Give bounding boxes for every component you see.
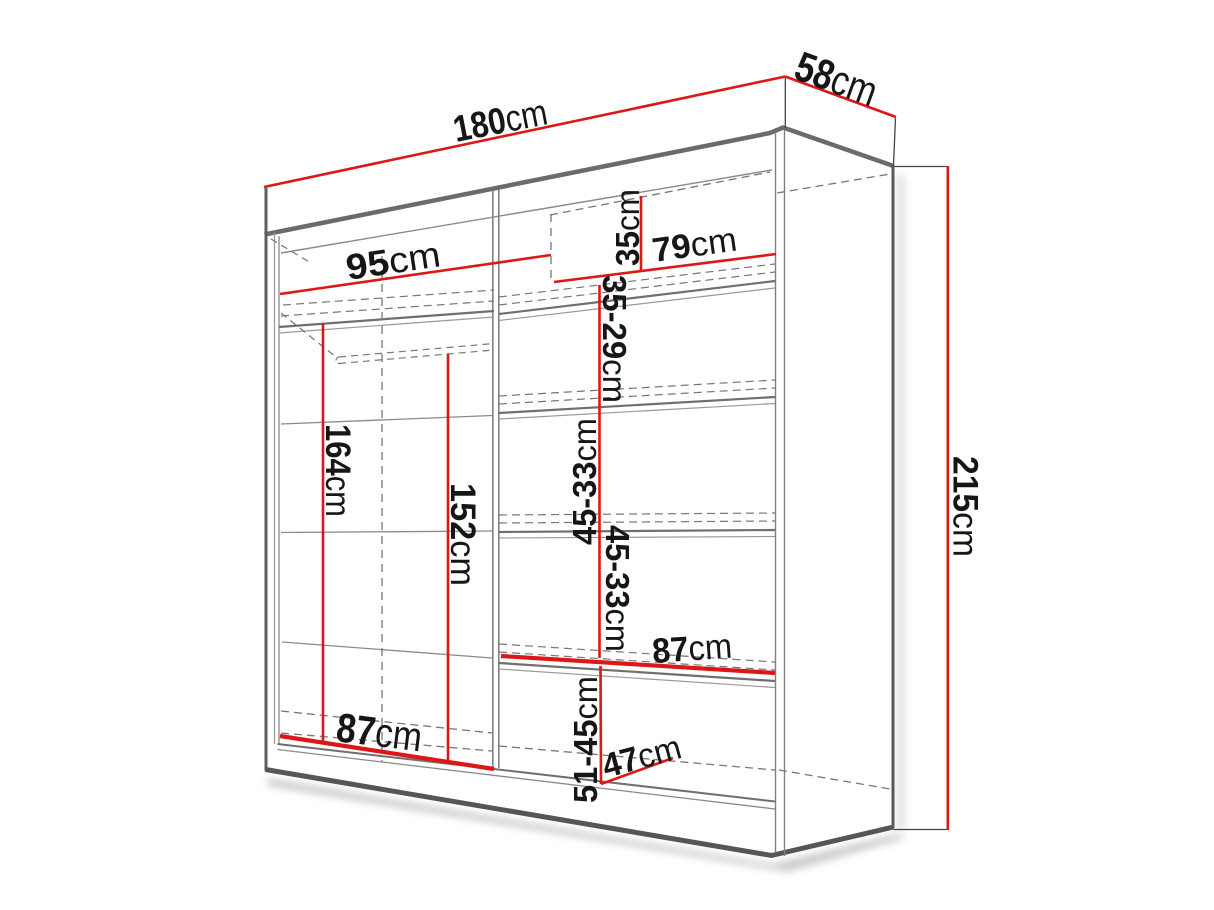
svg-text:164cm: 164cm <box>318 424 358 517</box>
svg-text:51-45cm: 51-45cm <box>567 676 604 803</box>
svg-text:35cm: 35cm <box>609 189 646 266</box>
svg-text:45-33cm: 45-33cm <box>599 525 636 652</box>
svg-text:45-33cm: 45-33cm <box>566 418 603 545</box>
svg-text:35-29cm: 35-29cm <box>596 275 633 403</box>
svg-text:215cm: 215cm <box>946 456 986 557</box>
svg-text:87cm: 87cm <box>651 626 734 670</box>
svg-text:152cm: 152cm <box>443 483 483 586</box>
